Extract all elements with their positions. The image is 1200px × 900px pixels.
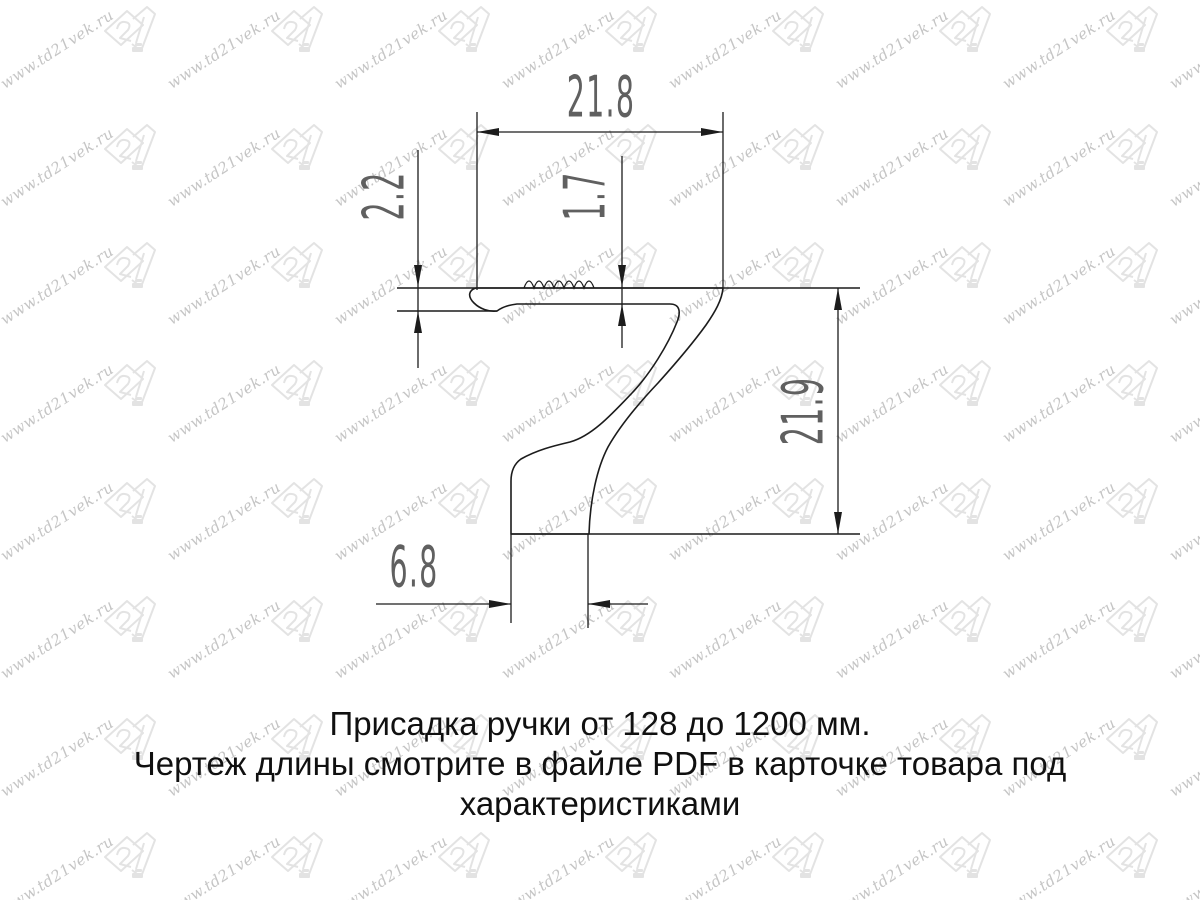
arrow-21-9-bottom: [834, 512, 842, 534]
dim-label-height: 21.9: [769, 377, 836, 445]
caption-line-2: Чертеж длины смотрите в файле PDF в карт…: [0, 744, 1200, 784]
caption: Присадка ручки от 128 до 1200 мм. Чертеж…: [0, 704, 1200, 824]
arrow-21-9-top: [834, 288, 842, 310]
arrow-21-8-left: [477, 128, 499, 136]
arrow-1-7-bottom: [618, 304, 626, 326]
dim-label-width-top: 21.8: [567, 63, 635, 130]
arrow-6-8-right: [588, 600, 610, 608]
caption-line-3: характеристиками: [0, 784, 1200, 824]
dim-label-foot-width: 6.8: [389, 533, 438, 600]
dimension-arrowheads: [414, 128, 842, 608]
profile-outline: [470, 288, 723, 534]
dim-label-cap-thickness: 2.2: [350, 171, 417, 220]
knurl-wave: [524, 281, 594, 288]
arrow-21-8-right: [701, 128, 723, 136]
arrow-6-8-left: [489, 600, 511, 608]
dimension-labels: 21.8 2.2 1.7 21.9 6.8: [350, 63, 836, 600]
arrow-2-2-top: [414, 265, 422, 287]
dim-label-plate-thickness: 1.7: [551, 171, 618, 220]
arrow-1-7-top: [618, 265, 626, 287]
caption-line-1: Присадка ручки от 128 до 1200 мм.: [0, 704, 1200, 744]
drawing-canvas: www.td21vek.ruwww.td21vek.ruwww.td21vek.…: [0, 0, 1200, 900]
arrow-2-2-bottom: [414, 311, 422, 333]
